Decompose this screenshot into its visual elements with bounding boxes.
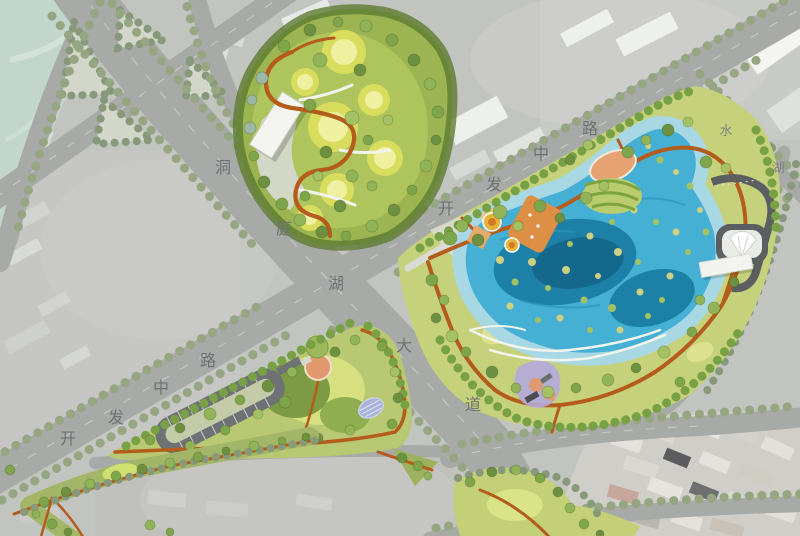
road-label-char: 开 bbox=[60, 429, 76, 448]
master-plan-canvas: 洞 庭 湖 大 道 开 发 中 路 开 发 中 路 水 湖 bbox=[0, 0, 800, 536]
road-label-char: 水 bbox=[719, 124, 732, 139]
road-label-char: 发 bbox=[108, 408, 124, 427]
road-label-char: 大 bbox=[396, 336, 412, 355]
road-label-char: 湖 bbox=[328, 274, 344, 293]
road-label-char: 中 bbox=[153, 378, 169, 397]
road-label-char: 中 bbox=[533, 144, 549, 163]
road-label-char: 路 bbox=[582, 119, 598, 138]
road-label-char: 路 bbox=[200, 351, 216, 370]
road-label-char: 发 bbox=[486, 175, 502, 194]
road-label-char: 开 bbox=[438, 199, 454, 218]
road-label-char: 湖 bbox=[771, 161, 784, 176]
road-label-char: 洞 bbox=[215, 158, 231, 177]
road-label-char: 庭 bbox=[276, 219, 292, 238]
north-park bbox=[238, 9, 453, 246]
road-label-char: 道 bbox=[465, 395, 481, 414]
master-plan-map: 洞 庭 湖 大 道 开 发 中 路 开 发 中 路 水 湖 bbox=[0, 0, 800, 536]
